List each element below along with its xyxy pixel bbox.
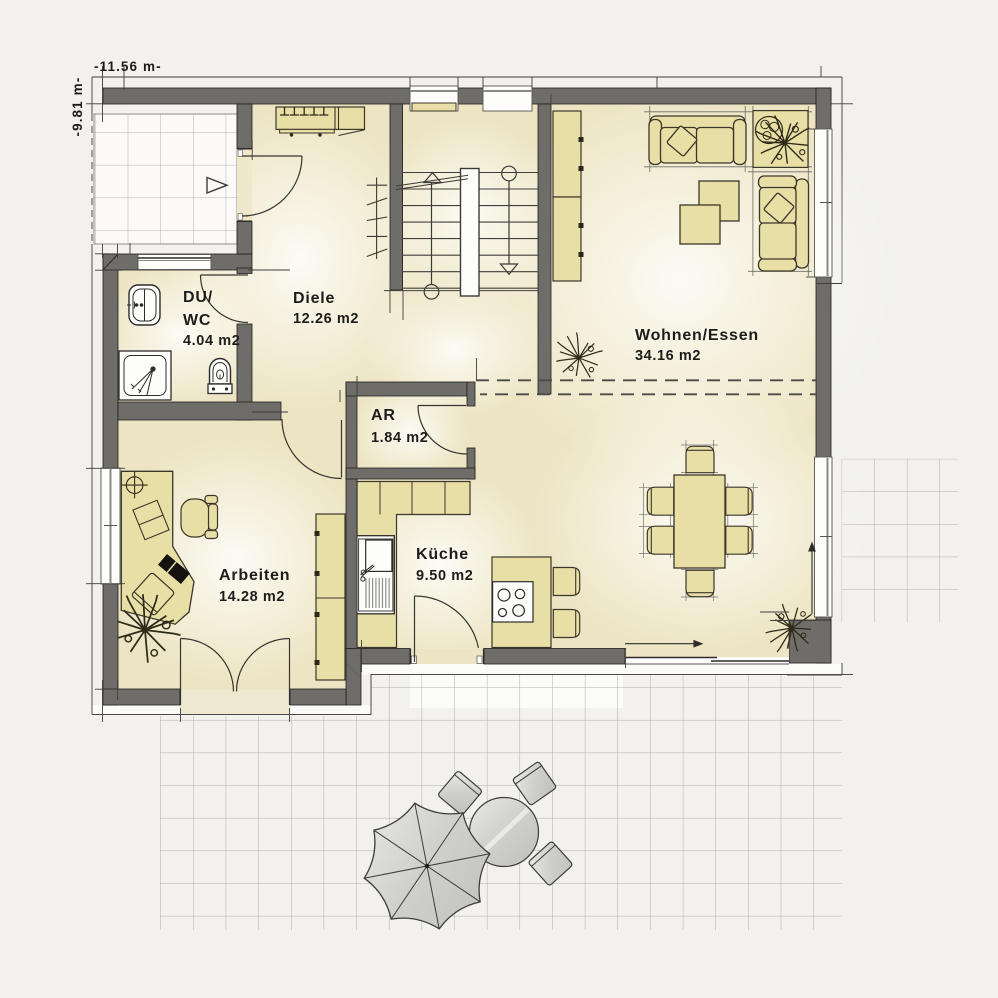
- svg-text:Arbeiten: Arbeiten: [219, 567, 290, 584]
- svg-text:12.26 m2: 12.26 m2: [293, 311, 359, 327]
- svg-text:9.50 m2: 9.50 m2: [416, 568, 473, 584]
- svg-text:-9.81 m-: -9.81 m-: [70, 77, 85, 137]
- svg-text:DU/: DU/: [183, 289, 213, 306]
- svg-text:Küche: Küche: [416, 546, 469, 563]
- svg-text:AR: AR: [371, 407, 396, 424]
- svg-text:1.84 m2: 1.84 m2: [371, 430, 428, 446]
- svg-text:Diele: Diele: [293, 290, 335, 307]
- svg-text:34.16 m2: 34.16 m2: [635, 348, 701, 364]
- svg-text:4.04 m2: 4.04 m2: [183, 333, 240, 349]
- svg-text:14.28 m2: 14.28 m2: [219, 589, 285, 605]
- svg-text:WC: WC: [183, 312, 211, 329]
- svg-text:-11.56 m-: -11.56 m-: [94, 59, 162, 74]
- svg-text:Wohnen/Essen: Wohnen/Essen: [635, 327, 759, 344]
